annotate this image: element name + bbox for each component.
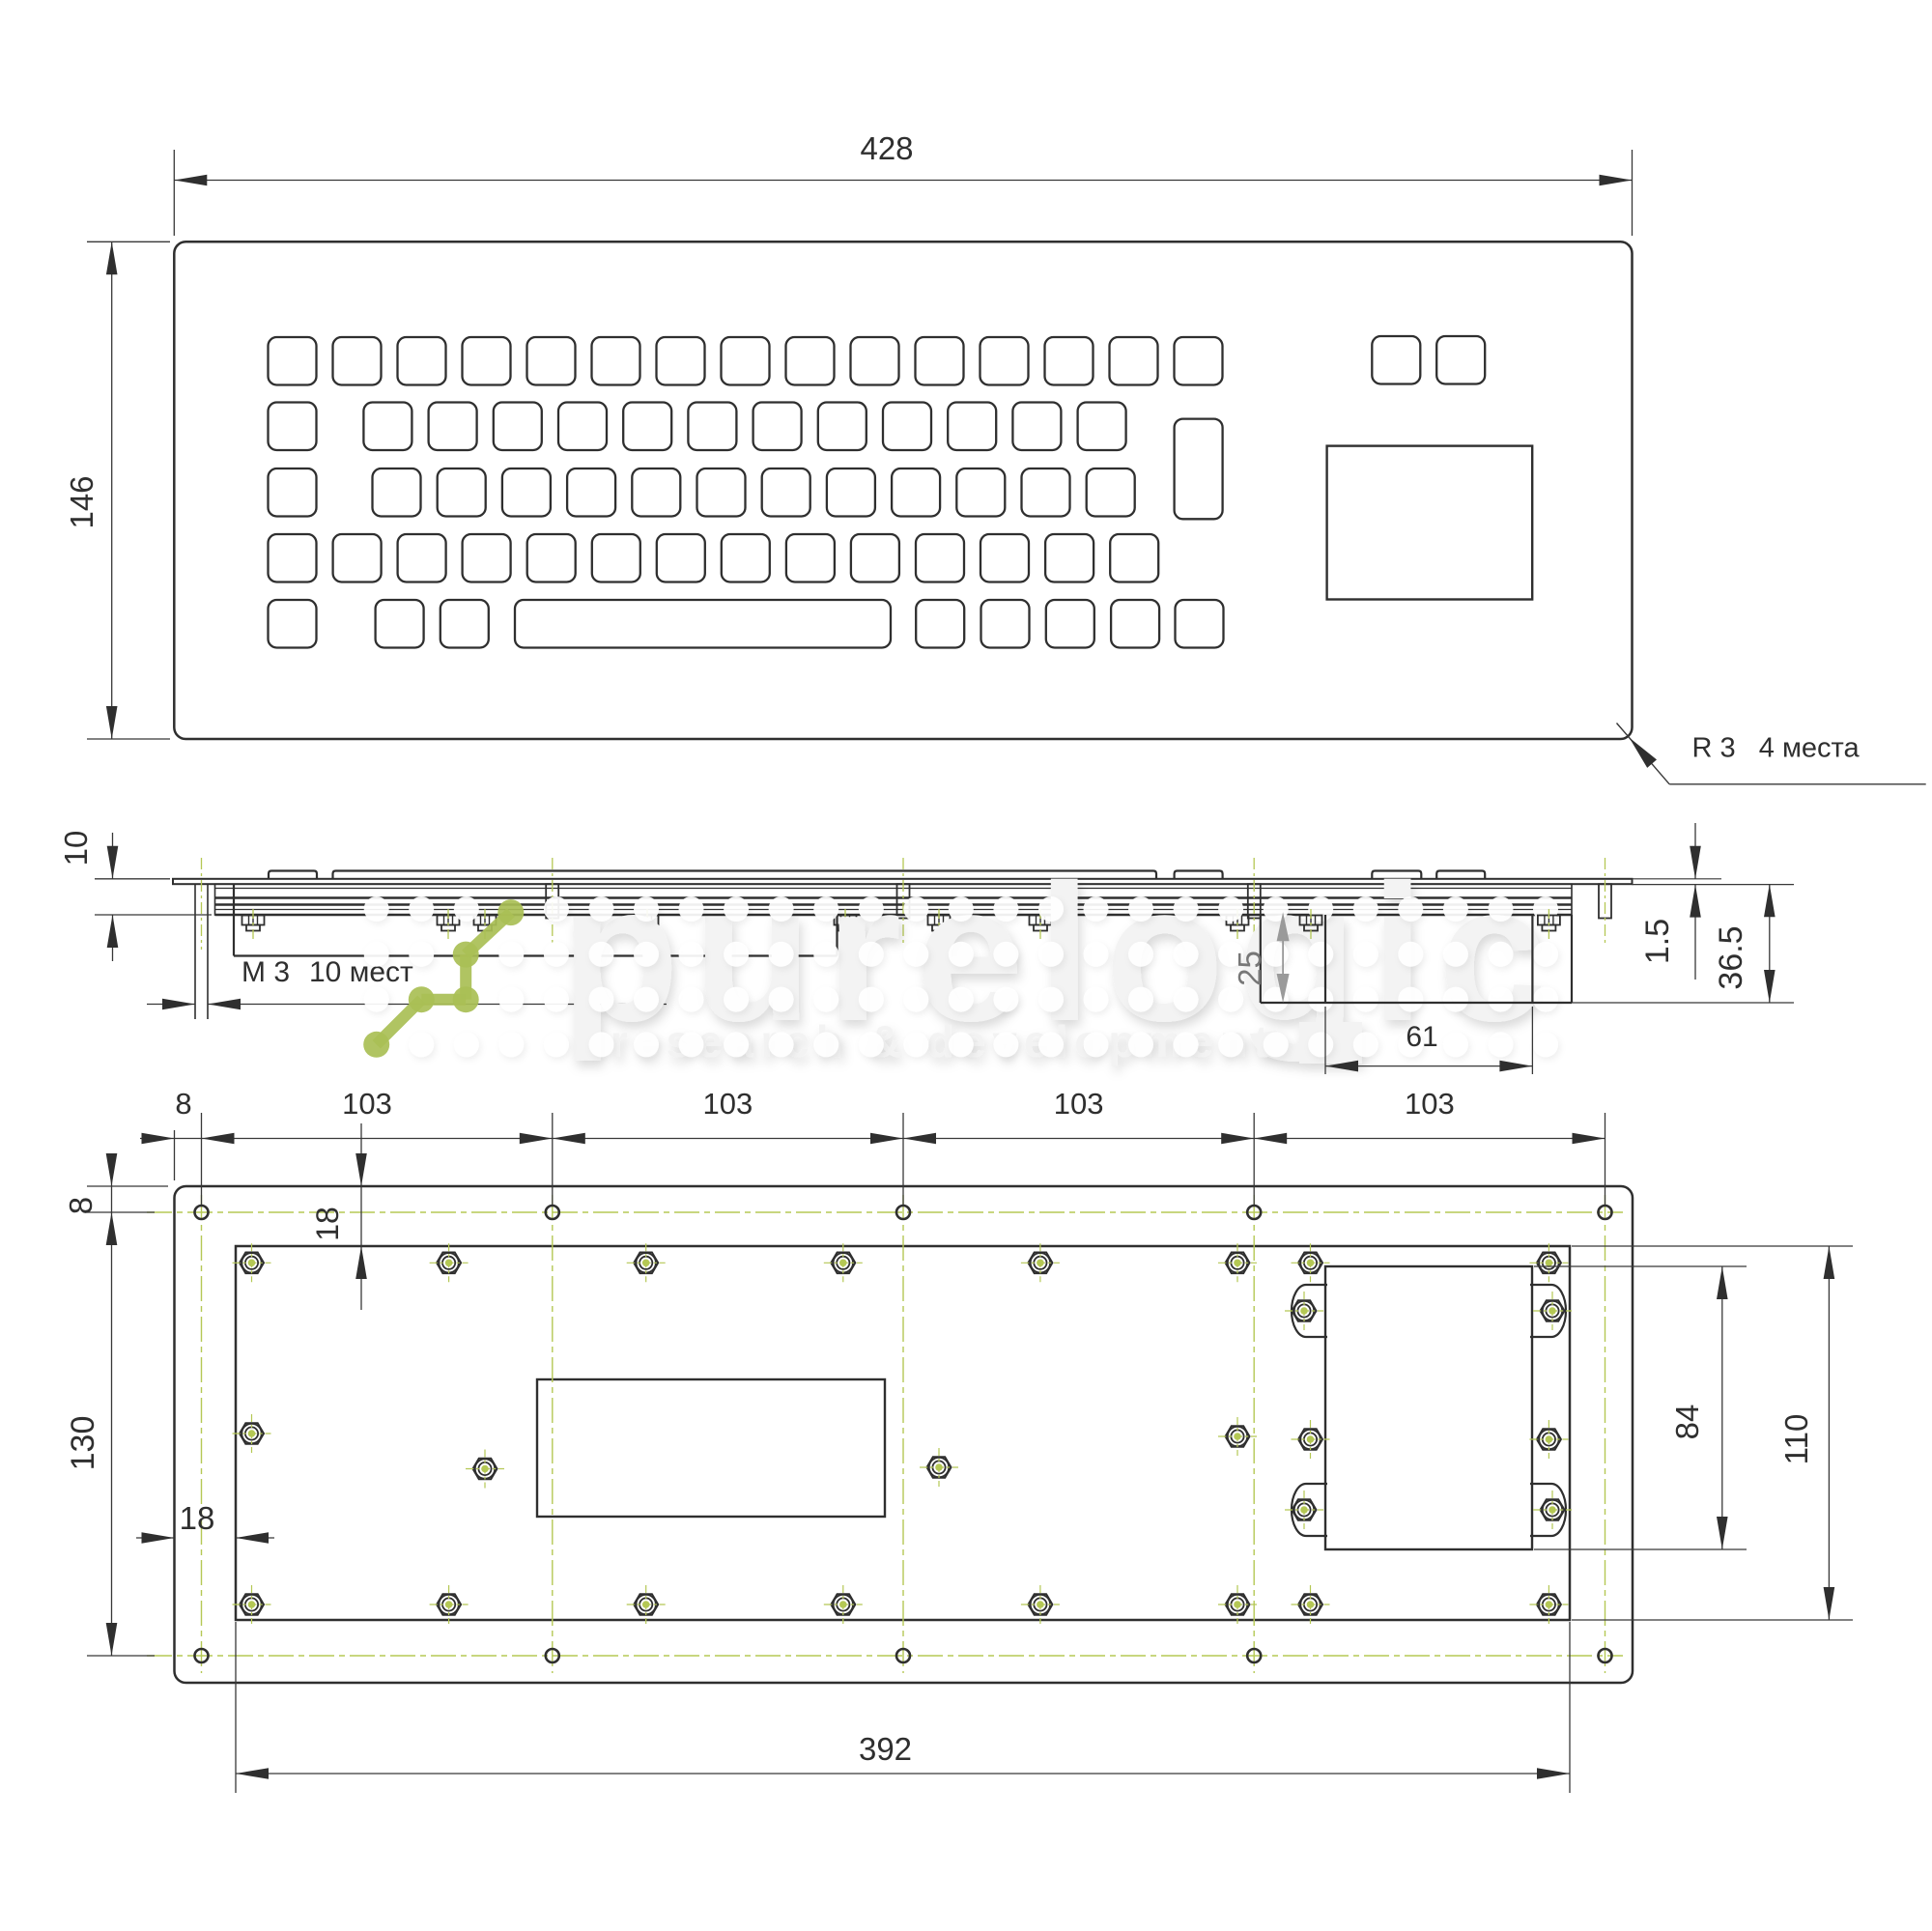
svg-text:61: 61: [1406, 1021, 1437, 1053]
svg-text:25: 25: [1232, 951, 1267, 986]
svg-text:130: 130: [65, 1416, 101, 1471]
svg-text:18: 18: [310, 1207, 345, 1241]
svg-text:18: 18: [180, 1500, 215, 1536]
svg-text:103: 103: [703, 1087, 753, 1121]
svg-text:103: 103: [342, 1087, 392, 1121]
svg-text:103: 103: [1405, 1087, 1455, 1121]
svg-text:36.5: 36.5: [1713, 925, 1749, 989]
svg-text:10 мест: 10 мест: [309, 956, 413, 988]
svg-text:428: 428: [860, 130, 913, 166]
svg-text:М 3: М 3: [241, 956, 290, 988]
svg-text:392: 392: [859, 1731, 912, 1767]
svg-text:84: 84: [1669, 1405, 1705, 1440]
svg-text:R 3 4 места: R 3 4 места: [1692, 733, 1861, 764]
svg-text:8: 8: [63, 1197, 99, 1214]
svg-text:110: 110: [1778, 1414, 1814, 1465]
svg-text:103: 103: [1054, 1087, 1104, 1121]
svg-text:1.5: 1.5: [1639, 919, 1676, 964]
svg-text:146: 146: [64, 475, 99, 528]
svg-text:10: 10: [58, 831, 94, 866]
svg-text:8: 8: [175, 1087, 191, 1121]
